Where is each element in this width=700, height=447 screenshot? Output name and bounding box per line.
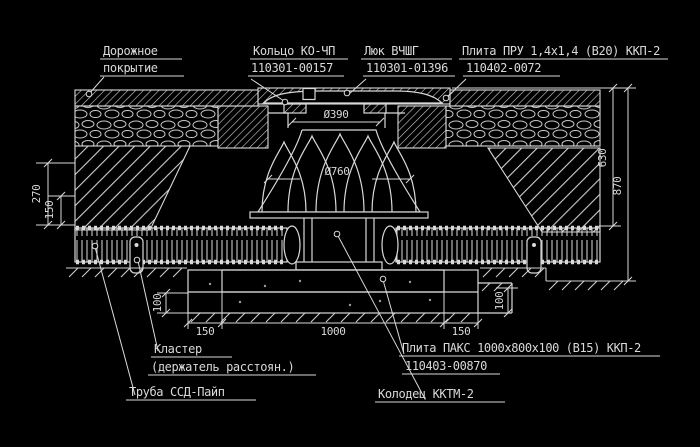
concrete-collar-left [218, 106, 268, 148]
dim-bedding-left: 100 [151, 294, 164, 313]
label-road-surface-2: покрытие [103, 61, 158, 75]
dim-base-right: 150 [452, 325, 471, 338]
cone-base-flange [250, 212, 428, 218]
manhole-cover [264, 91, 442, 103]
support-ring-left [284, 104, 306, 113]
dim-right-upper: 630 [596, 149, 609, 168]
label-ring-2: 110301-00157 [251, 61, 333, 75]
asphalt-layer-left [75, 90, 258, 106]
label-ring-1: Кольцо КО-ЧП [253, 44, 335, 58]
stone-layer-right [446, 106, 600, 146]
label-hatch-cover-1: Люк ВЧШГ [364, 44, 419, 58]
dim-left-inner: 150 [43, 201, 56, 220]
label-road-surface-1: Дорожное [103, 44, 158, 58]
dim-base-left: 150 [196, 325, 215, 338]
pipe-bell-left [284, 226, 300, 264]
asphalt-layer-right [450, 90, 600, 106]
stone-layer-left [75, 106, 218, 146]
dim-cone-diameter: Ø760 [325, 165, 350, 178]
label-hatch-cover-2: 110301-01396 [366, 61, 448, 75]
dim-bedding-right: 100 [493, 292, 506, 311]
label-slab-paks-2: 110403-00870 [405, 359, 487, 373]
concrete-collar-right [398, 106, 446, 148]
pipe-right [396, 228, 600, 262]
label-well: Колодец ККТМ-2 [378, 387, 474, 401]
engineering-drawing: Ø390 Ø760 270 150 630 870 150 1000 150 1… [0, 0, 700, 447]
dim-base-center: 1000 [321, 325, 346, 338]
label-pipe: Труба ССД-Пайп [129, 385, 225, 399]
pipe-left [75, 228, 287, 262]
dim-left-depth: 270 [30, 185, 43, 204]
label-slab-pru-1: Плита ПРУ 1,4х1,4 (В20) ККП-2 [462, 44, 660, 58]
label-slab-paks-1: Плита ПАКС 1000х800х100 (В15) ККП-2 [402, 341, 641, 355]
dim-neck-diameter: Ø390 [324, 108, 349, 121]
label-slab-pru-2: 110402-0072 [466, 61, 541, 75]
dim-right-lower: 870 [611, 177, 624, 196]
label-cluster-1: Кластер [154, 342, 202, 356]
label-cluster-2: (держатель расстоян.) [151, 360, 294, 374]
shaft-flange [296, 262, 382, 270]
pipe-bell-right [382, 226, 398, 264]
drawing-canvas: Ø390 Ø760 270 150 630 870 150 1000 150 1… [0, 0, 700, 447]
support-ring-right [364, 104, 386, 113]
cover-detail [303, 89, 315, 100]
